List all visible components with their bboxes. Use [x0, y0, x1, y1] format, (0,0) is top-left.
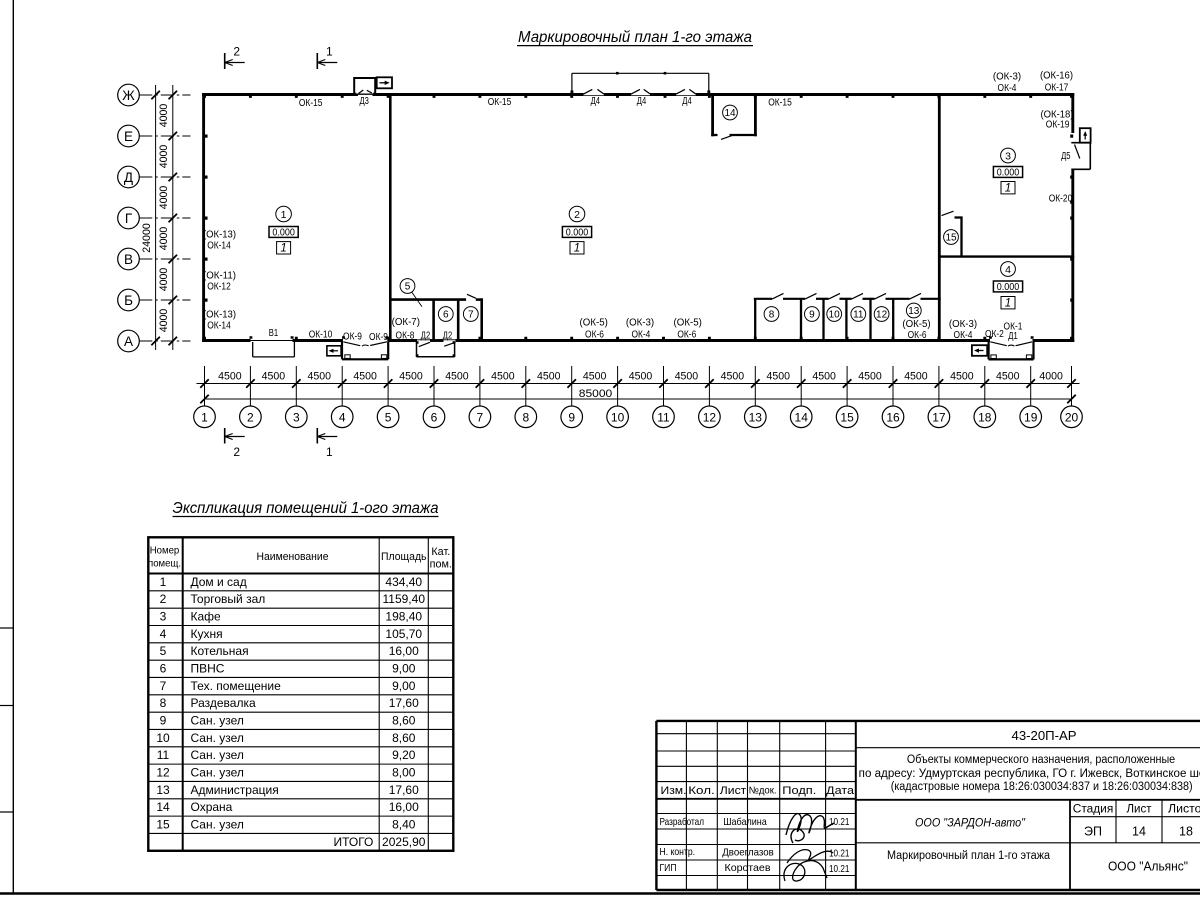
svg-text:ОК-4: ОК-4	[954, 330, 973, 341]
svg-text:9,20: 9,20	[392, 748, 416, 762]
svg-text:3: 3	[293, 410, 300, 424]
svg-text:15: 15	[840, 410, 854, 424]
svg-text:Двоеглазов: Двоеглазов	[722, 847, 774, 859]
svg-text:4500: 4500	[858, 370, 882, 382]
svg-text:2: 2	[233, 45, 240, 59]
svg-text:14: 14	[1132, 825, 1146, 839]
svg-text:8,60: 8,60	[392, 714, 416, 728]
svg-text:(ОК-5): (ОК-5)	[580, 318, 608, 329]
svg-text:17,60: 17,60	[389, 783, 419, 797]
svg-text:5: 5	[385, 410, 392, 424]
svg-text:(ОК-16): (ОК-16)	[1040, 71, 1073, 82]
svg-text:0.000: 0.000	[997, 167, 1020, 178]
svg-text:Сан. узел: Сан. узел	[191, 766, 244, 780]
svg-text:Д2: Д2	[443, 330, 453, 341]
svg-text:10: 10	[156, 731, 170, 745]
svg-text:Лист: Лист	[720, 785, 747, 797]
svg-text:10: 10	[611, 410, 625, 424]
svg-text:0.000: 0.000	[997, 282, 1020, 293]
svg-text:10.21: 10.21	[829, 816, 850, 828]
svg-text:Кухня: Кухня	[191, 627, 223, 641]
svg-text:18: 18	[978, 410, 992, 424]
svg-text:Изм.: Изм.	[661, 785, 687, 797]
svg-text:4500: 4500	[583, 370, 607, 382]
svg-text:Сан. узел: Сан. узел	[191, 731, 244, 745]
svg-text:1: 1	[574, 242, 580, 254]
svg-text:Д5: Д5	[1061, 151, 1071, 162]
svg-text:13: 13	[156, 783, 170, 797]
svg-text:Шабалина: Шабалина	[723, 816, 767, 828]
svg-text:4500: 4500	[308, 370, 332, 382]
svg-text:4500: 4500	[262, 370, 286, 382]
svg-text:4500: 4500	[353, 370, 377, 382]
svg-text:ООО "Альянс": ООО "Альянс"	[1108, 859, 1188, 874]
svg-text:5: 5	[160, 644, 167, 658]
svg-text:0.000: 0.000	[272, 227, 295, 238]
svg-text:ОК-6: ОК-6	[677, 330, 696, 341]
svg-text:ОК-14: ОК-14	[207, 321, 231, 332]
svg-text:4: 4	[1005, 264, 1011, 276]
svg-text:ОК-15: ОК-15	[299, 98, 323, 109]
svg-text:ОК-14: ОК-14	[207, 241, 231, 252]
svg-text:Наименование: Наименование	[257, 551, 329, 563]
svg-text:1: 1	[201, 410, 208, 424]
svg-text:Площадь: Площадь	[381, 551, 427, 563]
svg-text:Д4: Д4	[682, 96, 692, 107]
svg-text:Д2: Д2	[421, 330, 431, 341]
svg-text:ОК-9: ОК-9	[369, 332, 388, 343]
svg-text:11: 11	[853, 310, 864, 321]
svg-text:Раздевалка: Раздевалка	[191, 696, 256, 710]
svg-text:4500: 4500	[721, 370, 745, 382]
svg-text:8,40: 8,40	[392, 818, 416, 832]
svg-text:1: 1	[281, 209, 287, 221]
svg-text:16,00: 16,00	[389, 644, 419, 658]
svg-text:12: 12	[703, 410, 717, 424]
svg-text:1: 1	[1005, 297, 1011, 309]
svg-text:4500: 4500	[812, 370, 836, 382]
svg-text:4000: 4000	[158, 104, 170, 128]
svg-text:7: 7	[468, 310, 474, 321]
svg-text:1: 1	[326, 445, 333, 459]
svg-text:Торговый зал: Торговый зал	[191, 592, 266, 606]
svg-text:4000: 4000	[1039, 370, 1063, 382]
svg-text:Листов: Листов	[1168, 804, 1200, 816]
svg-text:ОК-15: ОК-15	[488, 97, 512, 108]
svg-text:4000: 4000	[158, 227, 170, 251]
svg-text:2: 2	[574, 209, 580, 221]
svg-text:8: 8	[522, 410, 529, 424]
svg-text:1: 1	[280, 242, 286, 254]
svg-text:(ОК-13): (ОК-13)	[203, 309, 236, 320]
svg-text:Лист: Лист	[1127, 804, 1153, 816]
svg-text:12: 12	[156, 766, 170, 780]
svg-text:ПВНС: ПВНС	[191, 662, 225, 676]
svg-text:24000: 24000	[141, 223, 153, 253]
svg-text:помещ.: помещ.	[148, 557, 181, 569]
svg-text:Е: Е	[124, 129, 133, 144]
svg-text:Ж: Ж	[122, 88, 135, 103]
svg-text:9: 9	[160, 714, 167, 728]
svg-text:2: 2	[247, 410, 254, 424]
svg-text:В1: В1	[269, 328, 279, 339]
svg-text:15: 15	[945, 233, 957, 244]
svg-text:(ОК-3): (ОК-3)	[626, 318, 654, 329]
svg-text:43-20П-АР: 43-20П-АР	[1012, 728, 1077, 743]
svg-text:Охрана: Охрана	[191, 800, 233, 814]
svg-text:Д1: Д1	[1008, 331, 1018, 342]
svg-text:Стадия: Стадия	[1073, 804, 1114, 816]
svg-text:Сан. узел: Сан. узел	[191, 818, 244, 832]
svg-text:4500: 4500	[491, 370, 515, 382]
svg-text:8,00: 8,00	[392, 766, 416, 780]
svg-text:4500: 4500	[399, 370, 423, 382]
svg-text:ИТОГО: ИТОГО	[333, 835, 373, 849]
svg-text:3: 3	[160, 610, 167, 624]
svg-text:ООО "ЗАРДОН-авто": ООО "ЗАРДОН-авто"	[915, 818, 1026, 830]
svg-text:5: 5	[405, 282, 411, 293]
svg-text:14: 14	[156, 800, 170, 814]
svg-text:ОК-15: ОК-15	[768, 98, 792, 109]
svg-text:ГИП: ГИП	[660, 862, 677, 874]
svg-text:18: 18	[1179, 825, 1193, 839]
svg-text:8: 8	[769, 310, 775, 321]
svg-text:4: 4	[160, 627, 167, 641]
svg-text:4500: 4500	[950, 370, 974, 382]
svg-text:2: 2	[233, 445, 240, 459]
svg-text:6: 6	[443, 310, 449, 321]
svg-text:9: 9	[809, 310, 815, 321]
svg-text:ОК-4: ОК-4	[998, 83, 1017, 94]
svg-text:ЭП: ЭП	[1084, 825, 1102, 839]
svg-text:105,70: 105,70	[385, 627, 422, 641]
svg-text:Д4: Д4	[637, 96, 647, 107]
svg-text:13: 13	[749, 410, 763, 424]
svg-text:ОК-17: ОК-17	[1045, 83, 1069, 94]
svg-text:Кат.: Кат.	[431, 546, 450, 558]
svg-text:17: 17	[932, 410, 946, 424]
svg-text:Д4: Д4	[591, 96, 601, 107]
svg-text:434,40: 434,40	[385, 575, 422, 589]
svg-text:4000: 4000	[158, 309, 170, 333]
svg-text:Б: Б	[124, 293, 133, 308]
svg-text:ОК-6: ОК-6	[908, 330, 927, 341]
svg-text:1: 1	[326, 45, 333, 59]
svg-text:Администрация: Администрация	[191, 783, 279, 797]
svg-text:4000: 4000	[158, 186, 170, 210]
svg-text:ОК-9: ОК-9	[343, 331, 362, 342]
svg-text:4: 4	[339, 410, 346, 424]
svg-text:16: 16	[886, 410, 900, 424]
svg-text:ОК-12: ОК-12	[207, 281, 231, 292]
svg-text:(ОК-3): (ОК-3)	[993, 72, 1021, 83]
svg-text:15: 15	[156, 818, 170, 832]
svg-text:Дом и сад: Дом и сад	[191, 575, 247, 589]
svg-text:ОК-6: ОК-6	[585, 330, 604, 341]
svg-text:№док.: №док.	[749, 786, 777, 797]
svg-text:4500: 4500	[537, 370, 561, 382]
svg-text:ОК-10: ОК-10	[309, 330, 333, 341]
svg-text:(кадастровые номера 18:26:0300: (кадастровые номера 18:26:030034:837 и 1…	[891, 781, 1193, 793]
svg-text:Маркировочный план 1-го этажа: Маркировочный план 1-го этажа	[887, 850, 1051, 862]
svg-text:Номер: Номер	[150, 545, 180, 557]
svg-text:198,40: 198,40	[385, 610, 422, 624]
svg-text:2025,90: 2025,90	[382, 835, 426, 849]
svg-text:Н. контр.: Н. контр.	[660, 846, 696, 858]
svg-text:6: 6	[160, 662, 167, 676]
svg-text:4500: 4500	[675, 370, 699, 382]
svg-text:ОК-8: ОК-8	[396, 330, 415, 341]
svg-text:1: 1	[160, 575, 167, 589]
svg-text:20: 20	[1065, 410, 1079, 424]
svg-text:19: 19	[1024, 410, 1038, 424]
svg-text:(ОК-5): (ОК-5)	[902, 319, 930, 330]
svg-text:Коротаев: Коротаев	[725, 862, 771, 874]
svg-text:1159,40: 1159,40	[383, 592, 426, 606]
svg-text:11: 11	[657, 410, 670, 424]
svg-text:85000: 85000	[579, 388, 613, 400]
svg-text:(ОК-7): (ОК-7)	[392, 317, 420, 328]
svg-text:11: 11	[157, 748, 170, 762]
svg-text:Дата: Дата	[826, 785, 855, 797]
svg-text:4500: 4500	[218, 370, 242, 382]
svg-text:Кафе: Кафе	[191, 610, 222, 624]
svg-text:4000: 4000	[158, 145, 170, 169]
svg-text:пом.: пом.	[430, 558, 452, 570]
svg-text:4500: 4500	[996, 370, 1020, 382]
svg-text:Д: Д	[124, 170, 133, 185]
svg-text:по адресу: Удмуртская республи: по адресу: Удмуртская республика, ГО г. …	[859, 768, 1200, 780]
svg-text:А: А	[124, 334, 133, 349]
svg-text:Разработал: Разработал	[660, 816, 705, 828]
svg-text:1: 1	[1005, 182, 1011, 194]
svg-text:Г: Г	[125, 211, 133, 226]
svg-text:4500: 4500	[904, 370, 928, 382]
svg-text:ОК-19: ОК-19	[1046, 120, 1070, 131]
svg-text:7: 7	[477, 410, 484, 424]
svg-text:Кол.: Кол.	[688, 785, 715, 797]
svg-text:10: 10	[829, 310, 841, 321]
svg-text:4500: 4500	[767, 370, 791, 382]
svg-text:14: 14	[724, 108, 736, 119]
svg-text:10.21: 10.21	[829, 848, 850, 860]
svg-text:Экспликация помещений 1-ого эт: Экспликация помещений 1-ого этажа	[173, 500, 439, 517]
svg-text:ОК-4: ОК-4	[631, 330, 650, 341]
svg-text:Маркировочный план 1-го этажа: Маркировочный план 1-го этажа	[518, 29, 752, 46]
svg-text:14: 14	[795, 410, 809, 424]
svg-text:4500: 4500	[445, 370, 469, 382]
svg-text:2: 2	[160, 592, 167, 606]
svg-text:9,00: 9,00	[392, 679, 416, 693]
svg-text:7: 7	[160, 679, 167, 693]
svg-text:0.000: 0.000	[566, 227, 589, 238]
svg-text:Сан. узел: Сан. узел	[191, 748, 244, 762]
svg-text:9,00: 9,00	[392, 662, 416, 676]
svg-text:Тех. помещение: Тех. помещение	[191, 679, 282, 693]
svg-text:17,60: 17,60	[389, 696, 419, 710]
svg-text:ОК-20: ОК-20	[1049, 194, 1073, 205]
svg-text:13: 13	[908, 306, 920, 317]
svg-text:12: 12	[876, 310, 888, 321]
svg-text:4000: 4000	[158, 268, 170, 292]
svg-text:Сан. узел: Сан. узел	[191, 714, 244, 728]
svg-text:6: 6	[431, 410, 438, 424]
svg-text:Котельная: Котельная	[191, 644, 249, 658]
svg-text:9: 9	[568, 410, 575, 424]
svg-text:(ОК-11): (ОК-11)	[203, 270, 236, 281]
svg-text:Подп.: Подп.	[782, 785, 816, 797]
svg-text:Д3: Д3	[360, 96, 370, 107]
svg-text:4500: 4500	[629, 370, 653, 382]
svg-text:(ОК-5): (ОК-5)	[674, 318, 702, 329]
svg-text:В: В	[124, 252, 133, 267]
svg-text:8,60: 8,60	[392, 731, 416, 745]
svg-text:(ОК-3): (ОК-3)	[949, 319, 977, 330]
svg-text:16,00: 16,00	[389, 800, 419, 814]
svg-text:ОК-2: ОК-2	[985, 329, 1004, 340]
svg-text:(ОК-13): (ОК-13)	[203, 229, 236, 240]
svg-text:Объекты коммерческого назначен: Объекты коммерческого назначения, распол…	[907, 754, 1175, 766]
svg-text:3: 3	[1005, 150, 1011, 162]
svg-text:10.21: 10.21	[829, 863, 850, 875]
svg-text:8: 8	[160, 696, 167, 710]
